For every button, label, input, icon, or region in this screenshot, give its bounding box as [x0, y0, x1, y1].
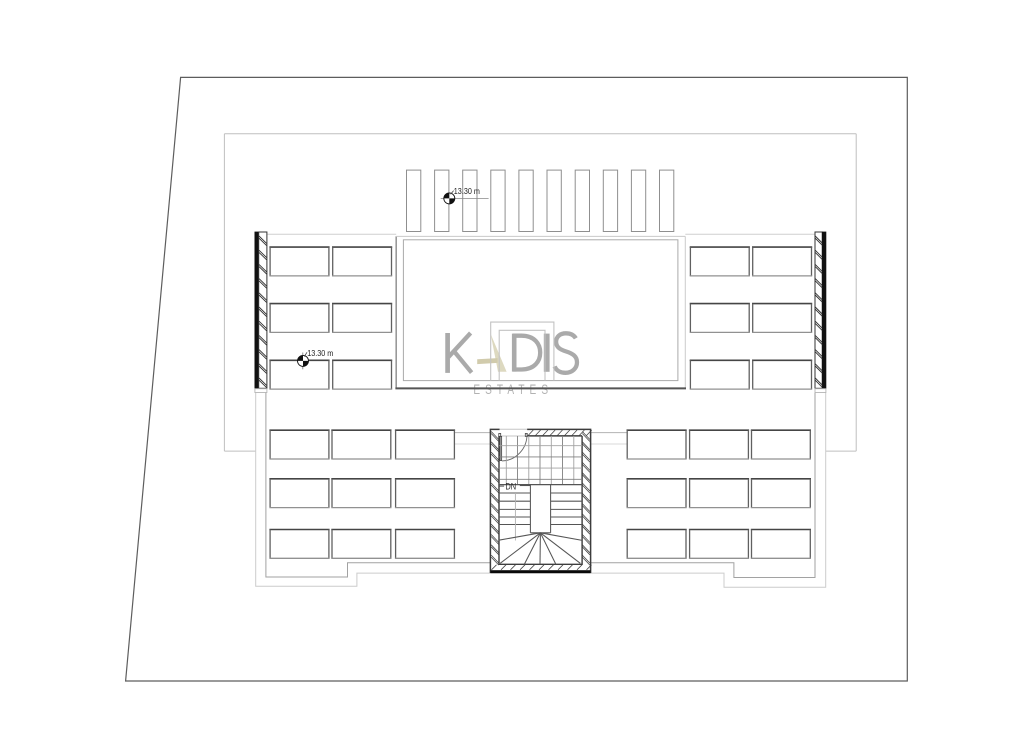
svg-text:DN: DN — [505, 481, 516, 492]
svg-text:13.30 m: 13.30 m — [454, 187, 480, 197]
svg-text:13.30 m: 13.30 m — [307, 348, 333, 358]
